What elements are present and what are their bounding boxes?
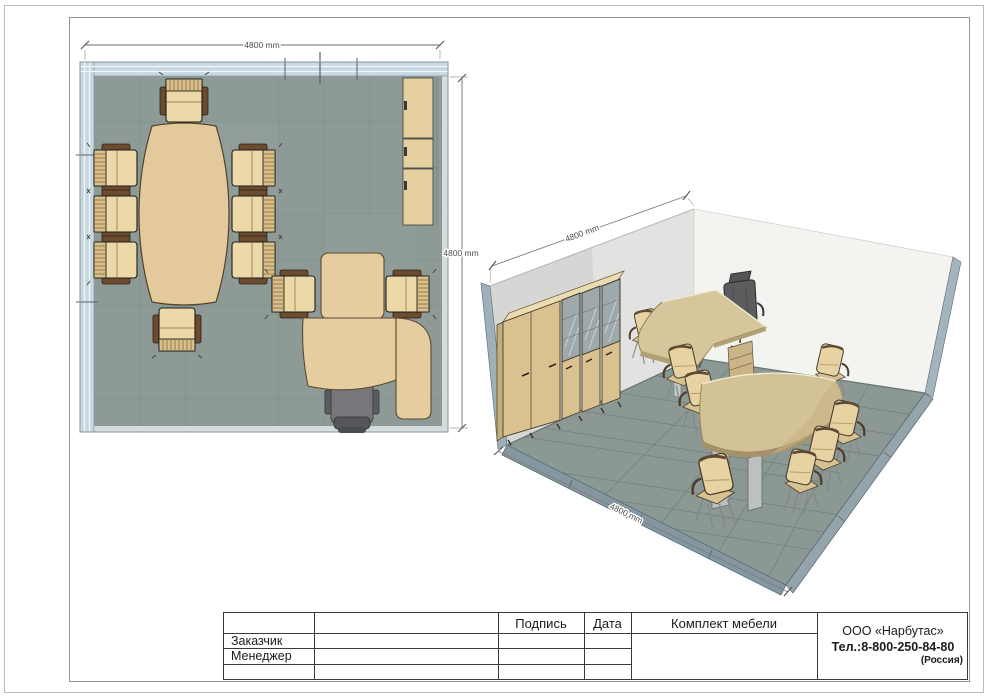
sheet-border [4,5,984,693]
furniture-layout-sheet: { "plan_view": { "dim_width_label": "480… [0,0,988,700]
